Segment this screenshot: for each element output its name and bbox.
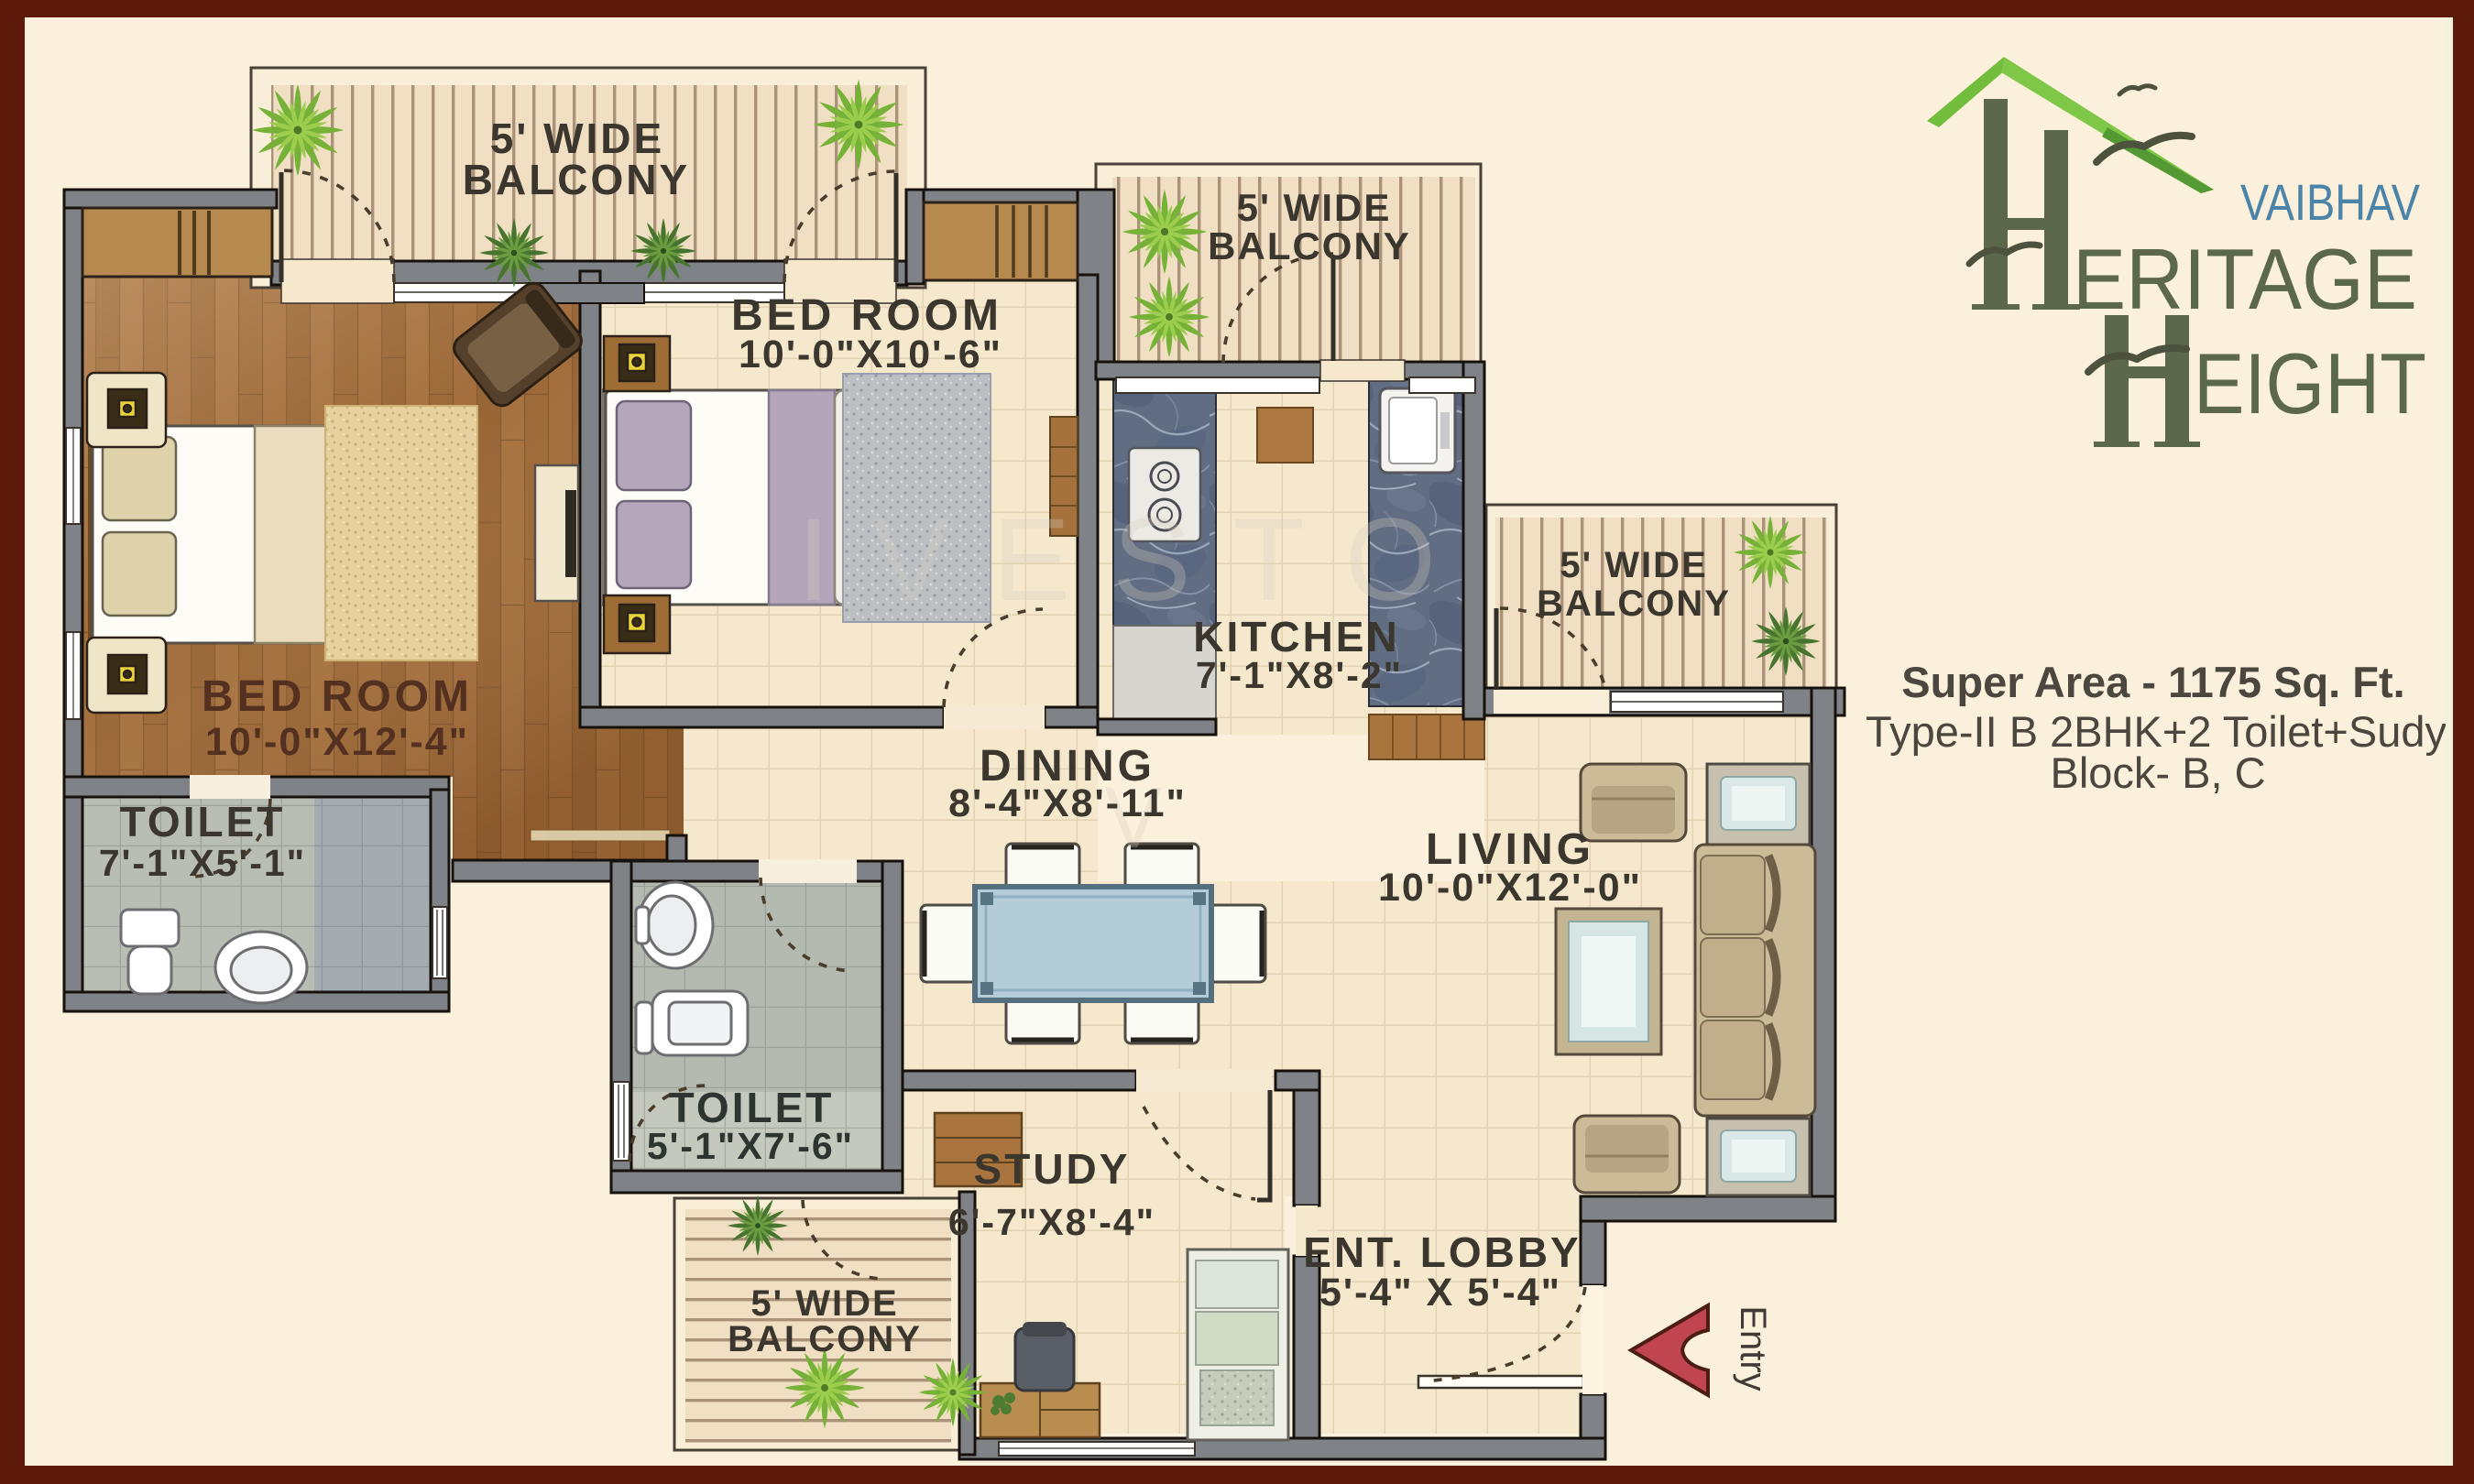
svg-text:5'-1"X7'-6": 5'-1"X7'-6" [647,1125,854,1167]
svg-text:10'-0"X12'-0": 10'-0"X12'-0" [1378,866,1642,910]
svg-text:5' WIDE: 5' WIDE [750,1283,898,1324]
svg-text:5' WIDE: 5' WIDE [1237,186,1392,229]
svg-text:TOILET: TOILET [120,798,286,846]
svg-text:6'-7"X8'-4": 6'-7"X8'-4" [948,1201,1155,1243]
svg-text:BALCONY: BALCONY [1208,224,1411,267]
svg-text:10'-0"X10'-6": 10'-0"X10'-6" [739,333,1002,376]
svg-text:EIGHT: EIGHT [2194,335,2426,431]
svg-text:IVESTO: IVESTO [797,495,1478,626]
svg-text:ERITAGE: ERITAGE [2073,231,2417,327]
svg-text:Entry: Entry [1733,1305,1773,1391]
svg-text:8'-4"X8'-11": 8'-4"X8'-11" [948,781,1187,825]
svg-text:Super Area - 1175 Sq. Ft.: Super Area - 1175 Sq. Ft. [1901,658,2404,706]
svg-text:ENT. LOBBY: ENT. LOBBY [1303,1228,1581,1276]
svg-text:5' WIDE: 5' WIDE [1560,545,1707,585]
svg-text:BALCONY: BALCONY [1537,584,1731,624]
svg-text:5'-4" X 5'-4": 5'-4" X 5'-4" [1319,1271,1561,1315]
svg-text:BALCONY: BALCONY [728,1319,922,1359]
svg-text:VAIBHAV: VAIBHAV [2240,173,2421,231]
svg-text:7'-1"X8'-2": 7'-1"X8'-2" [1196,654,1403,696]
svg-text:BALCONY: BALCONY [463,156,690,203]
svg-text:7'-1"X5'-1": 7'-1"X5'-1" [99,842,306,884]
svg-text:BED ROOM: BED ROOM [202,672,473,721]
svg-text:Block- B, C: Block- B, C [2050,748,2265,797]
svg-text:10'-0"X12'-4": 10'-0"X12'-4" [205,720,469,764]
svg-text:STUDY: STUDY [974,1145,1131,1193]
